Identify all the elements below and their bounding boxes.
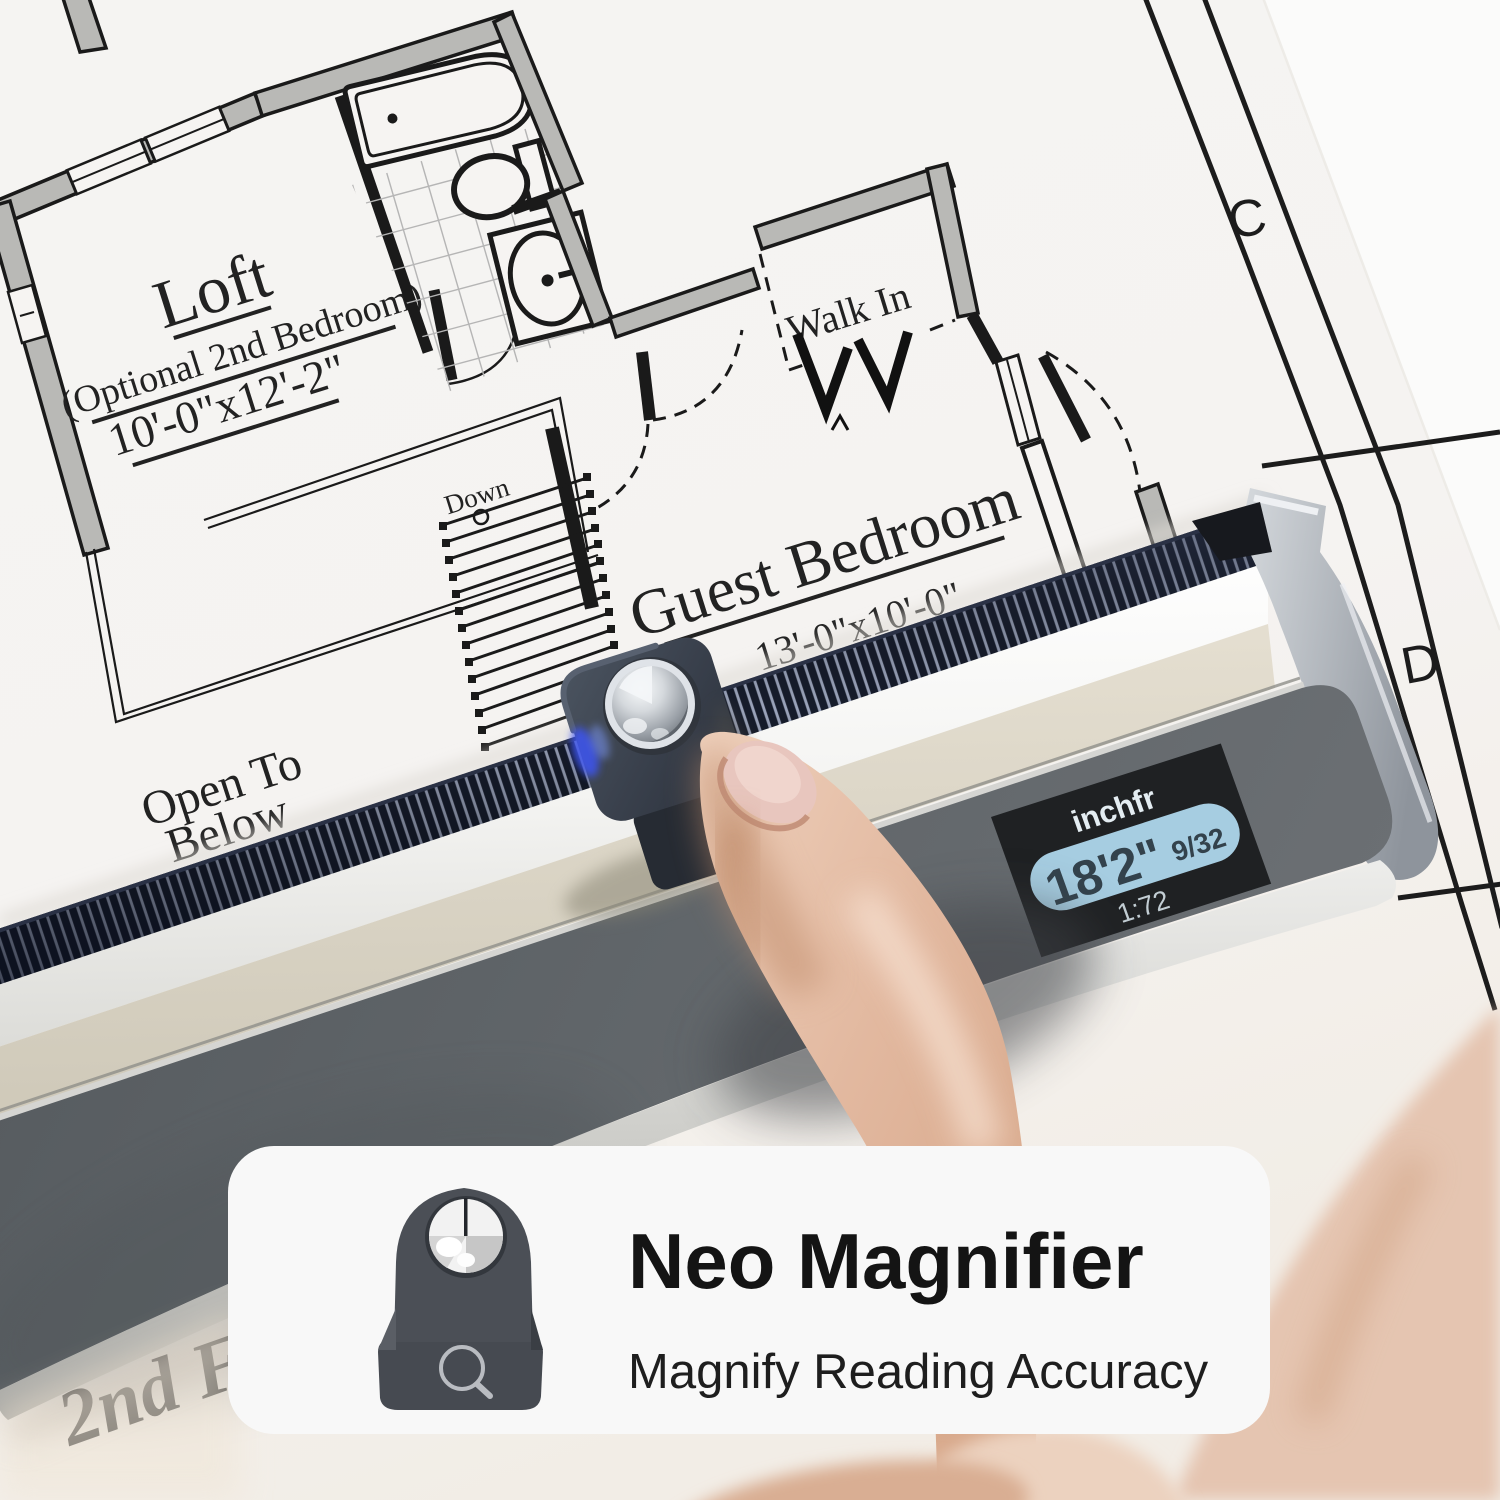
svg-text:Magnify Reading Accuracy: Magnify Reading Accuracy [628, 1345, 1209, 1399]
svg-text:Neo Magnifier: Neo Magnifier [628, 1217, 1144, 1305]
